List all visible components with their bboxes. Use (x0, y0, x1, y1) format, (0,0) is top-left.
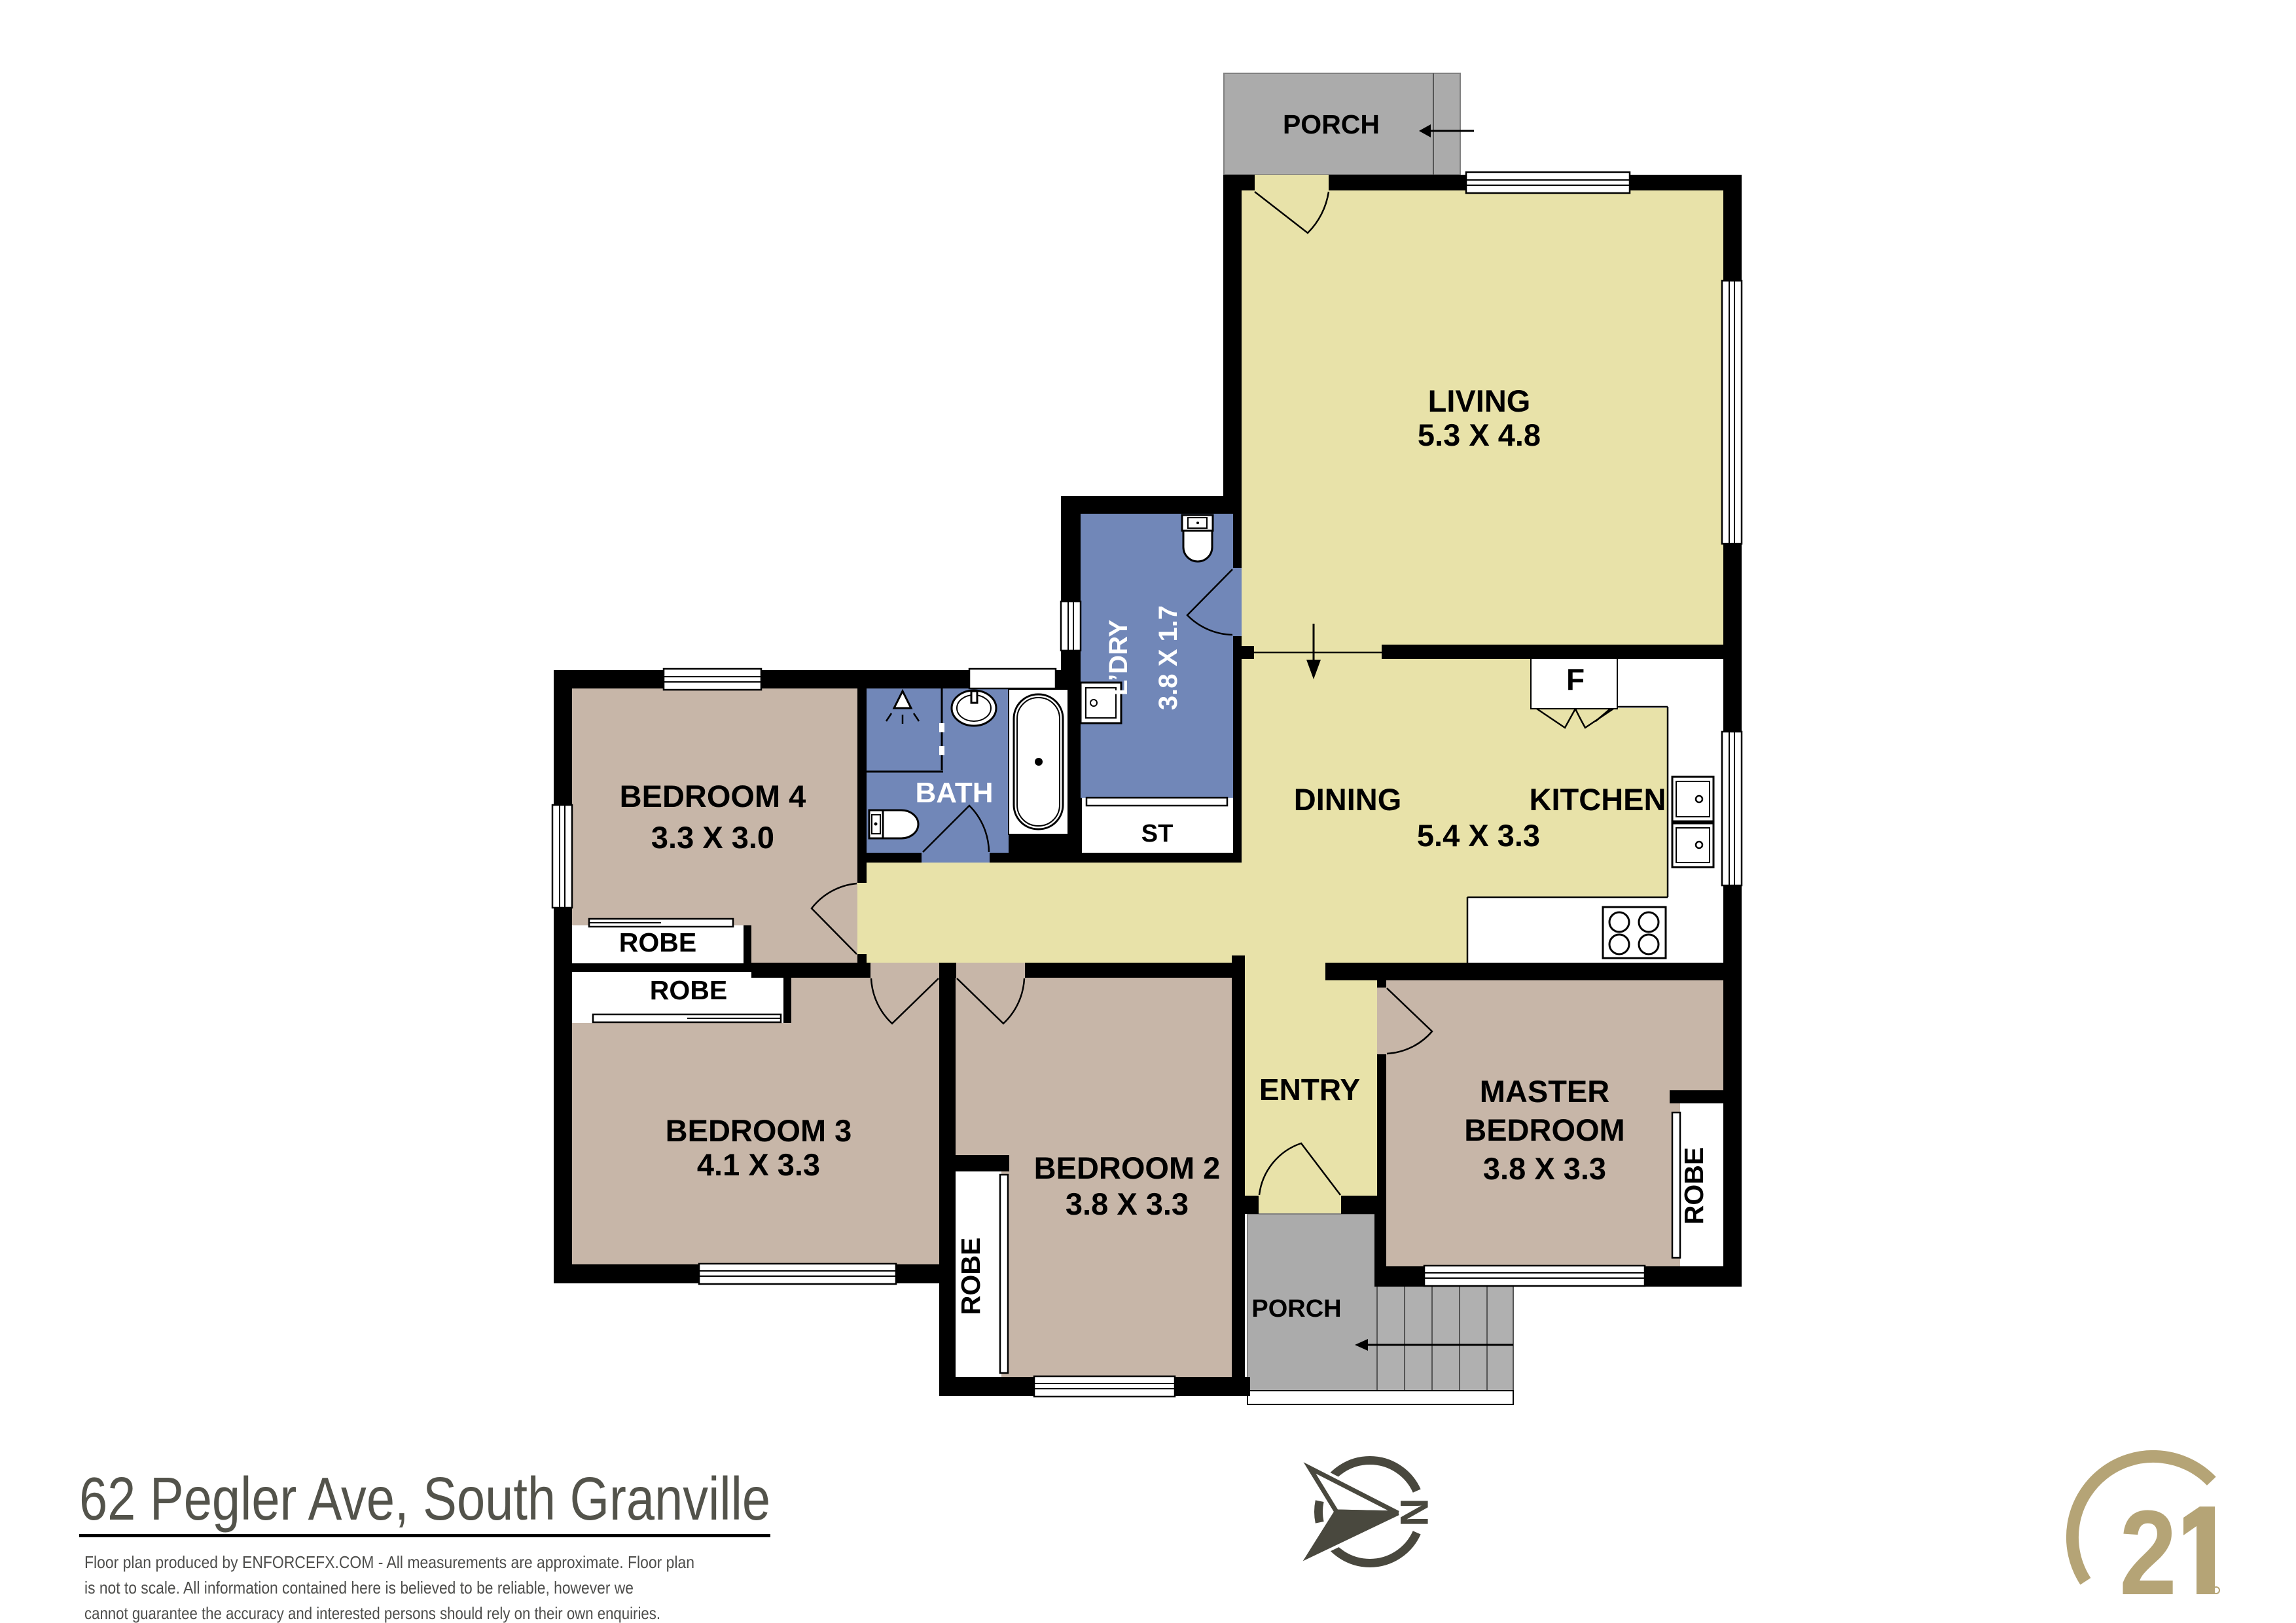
svg-text:BEDROOM 4: BEDROOM 4 (620, 779, 806, 813)
svg-text:KITCHEN: KITCHEN (1530, 782, 1666, 817)
svg-text:BEDROOM: BEDROOM (1464, 1113, 1624, 1147)
svg-text:F: F (1566, 662, 1585, 696)
svg-text:MASTER: MASTER (1480, 1074, 1609, 1109)
svg-text:ROBE: ROBE (650, 975, 727, 1005)
svg-text:DINING: DINING (1294, 782, 1402, 817)
svg-text:PORCH: PORCH (1283, 109, 1380, 139)
svg-text:BEDROOM 3: BEDROOM 3 (666, 1113, 852, 1148)
svg-text:5.4 X 3.3: 5.4 X 3.3 (1417, 818, 1540, 853)
svg-text:62 Pegler Ave, South Granville: 62 Pegler Ave, South Granville (79, 1465, 770, 1533)
svg-text:Floor plan produced by ENFORCE: Floor plan produced by ENFORCEFX.COM - A… (84, 1552, 694, 1572)
svg-text:3.8 X 1.7: 3.8 X 1.7 (1154, 605, 1183, 710)
svg-text:3.3 X 3.0: 3.3 X 3.0 (651, 820, 774, 855)
svg-text:PORCH: PORCH (1251, 1295, 1341, 1323)
svg-text:ROBE: ROBE (619, 927, 696, 957)
svg-text:L’DRY: L’DRY (1104, 620, 1133, 696)
svg-text:ROBE: ROBE (956, 1238, 986, 1315)
svg-text:BATH: BATH (916, 777, 994, 809)
svg-text:5.3 X 4.8: 5.3 X 4.8 (1418, 418, 1541, 452)
svg-text:3.8 X 3.3: 3.8 X 3.3 (1066, 1186, 1189, 1221)
svg-text:ROBE: ROBE (1679, 1147, 1709, 1224)
svg-text:3.8 X 3.3: 3.8 X 3.3 (1483, 1151, 1606, 1186)
svg-text:2: 2 (2119, 1485, 2177, 1620)
svg-text:ENTRY: ENTRY (1259, 1073, 1360, 1107)
svg-text:ST: ST (1141, 820, 1174, 847)
svg-text:BEDROOM 2: BEDROOM 2 (1034, 1150, 1221, 1185)
svg-text:N: N (1392, 1498, 1436, 1526)
svg-text:4.1 X 3.3: 4.1 X 3.3 (697, 1147, 820, 1182)
svg-text:cannot guarantee the accuracy: cannot guarantee the accuracy and intere… (84, 1603, 660, 1623)
svg-text:is not to scale. All informati: is not to scale. All information contain… (84, 1578, 634, 1597)
svg-text:LIVING: LIVING (1428, 383, 1531, 418)
